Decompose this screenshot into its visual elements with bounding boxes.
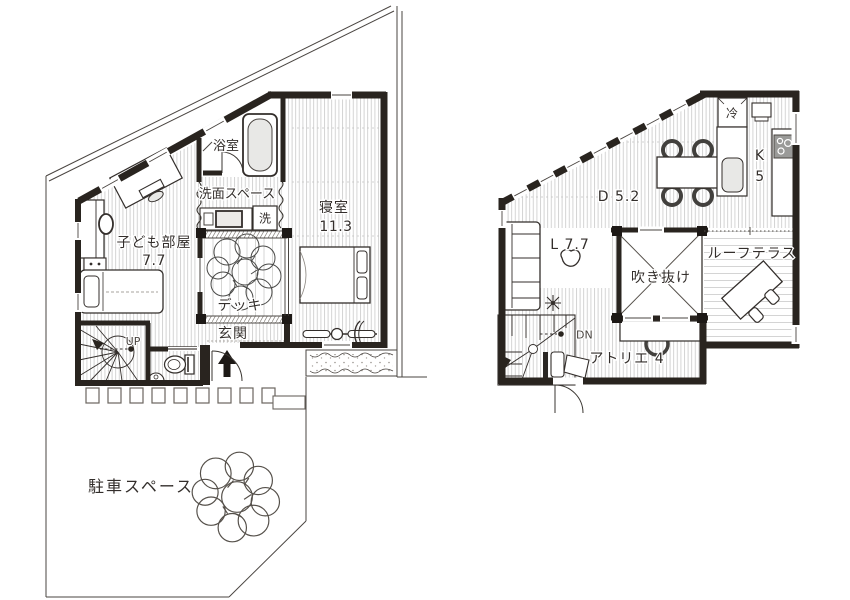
floor-plan-page: 浴室 洗面スペース 洗 寝室 11.3 子ども部屋 7.7 デッキ 玄関 UP … — [0, 0, 850, 600]
kitchen-island-icon — [717, 127, 747, 196]
sofa-icon — [502, 222, 540, 310]
bath-door-swing — [222, 152, 243, 173]
kids-room-label: 子ども部屋 — [117, 235, 192, 251]
planter-box — [306, 350, 397, 376]
bedroom-label: 寝室 — [319, 199, 349, 216]
bed-icon — [300, 247, 370, 303]
atelier-label: アトリエ 4 — [589, 351, 664, 367]
kitchen-area-label: 5 — [755, 169, 764, 185]
wall-cabinet-icon — [752, 103, 771, 121]
fridge-label: 冷 — [726, 107, 738, 121]
floor-plan-drawing: 浴室 洗面スペース 洗 寝室 11.3 子ども部屋 7.7 デッキ 玄関 UP … — [0, 0, 850, 600]
parking-label: 駐車スペース — [88, 477, 194, 496]
void-label: 吹き抜け — [631, 270, 691, 286]
cooktop-icon — [774, 135, 794, 158]
living-label: L 7.7 — [550, 237, 590, 253]
roof-terrace-label: ルーフテラス — [708, 246, 797, 262]
kitchen-label: K — [755, 148, 765, 164]
kids-dresser-icon — [84, 258, 106, 271]
kids-bed-icon — [80, 270, 163, 313]
washroom-label: 洗面スペース — [199, 187, 275, 202]
dining-label: D 5.2 — [598, 189, 641, 205]
washer-label: 洗 — [259, 212, 271, 226]
deck-label: デッキ — [218, 297, 263, 314]
fence — [86, 388, 275, 403]
toilet-icon — [165, 355, 195, 374]
bath-label-leader — [203, 142, 212, 151]
bath-label: 浴室 — [213, 138, 239, 154]
gate — [273, 396, 305, 409]
stairs-down-label: DN — [576, 329, 593, 342]
vanity-counter-icon — [200, 208, 252, 230]
entrance-label: 玄関 — [218, 325, 248, 342]
dining-table-icon — [657, 157, 720, 188]
entrance-arrow-icon — [218, 350, 236, 377]
parking-tree-icon — [192, 452, 279, 542]
bathtub-icon — [243, 114, 277, 176]
bedroom-area-label: 11.3 — [319, 219, 352, 235]
kids-room-area-label: 7.7 — [142, 253, 166, 269]
plant-icon — [545, 295, 561, 311]
stairs-up-label: UP — [126, 335, 141, 348]
